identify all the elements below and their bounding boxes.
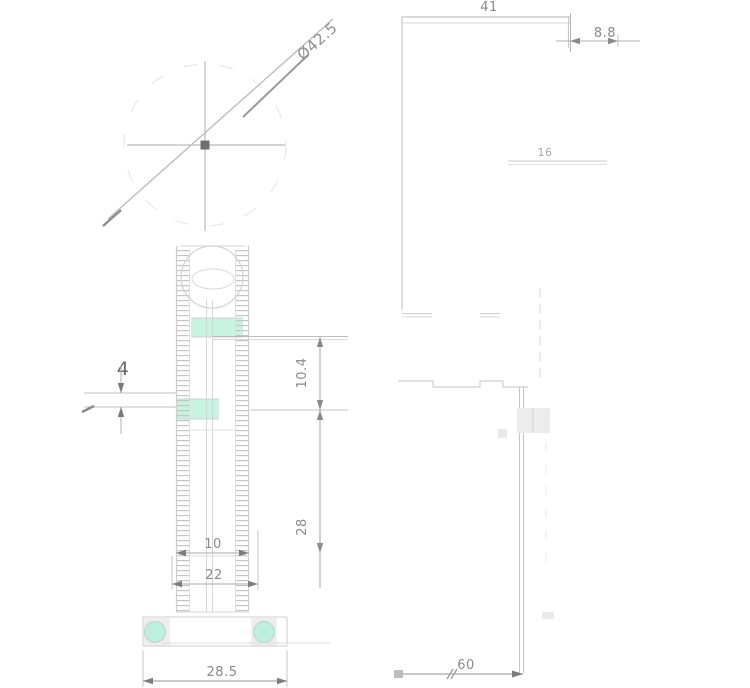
dim-side-hole: 16 — [538, 146, 553, 159]
arrow-v-bottom — [317, 543, 323, 553]
dim-body-height: 28 — [295, 518, 310, 536]
ribs-right — [235, 246, 249, 612]
arrow-base-right — [277, 678, 287, 684]
arrow-v-top — [317, 337, 323, 347]
roller-inner-ellipse — [192, 269, 234, 289]
side-view — [398, 13, 607, 673]
side-detail-patch — [498, 429, 507, 438]
mounting-hole-right — [254, 622, 275, 643]
drawing-canvas: Ø42.5 4 10.4 28 10 22 — [0, 0, 750, 688]
ribs-left — [176, 246, 190, 612]
arrow-22-right — [248, 581, 258, 587]
tick-60-left — [394, 670, 403, 678]
dim-base-width: 28.5 — [207, 665, 238, 680]
dim-plunger-travel: 4 — [117, 358, 130, 380]
center-mark — [201, 141, 210, 150]
front-view-dimensions: Ø42.5 4 10.4 28 10 22 — [82, 19, 348, 687]
dim-lower-width: 22 — [205, 568, 223, 583]
arrow-60-right — [512, 671, 523, 678]
arrow-v-mid-up — [317, 400, 323, 410]
arrow-travel-bottom — [118, 407, 124, 417]
dim-upper-height: 10.4 — [295, 358, 310, 389]
diameter-leader-dark — [243, 55, 308, 117]
arrow-v-mid-down — [317, 410, 323, 420]
mounting-hole-left — [145, 622, 166, 643]
side-view-dimensions: 41 8.8 16 60 — [394, 0, 640, 679]
arrow-base-left — [143, 678, 153, 684]
dim-lower-width-inner: 10 — [204, 537, 222, 552]
diameter-leader-end — [103, 210, 121, 226]
dim-top-width: 41 — [480, 0, 498, 15]
side-bottom-patch — [542, 612, 554, 619]
dim-top-offset: 8.8 — [594, 26, 616, 41]
dim-side-width: 60 — [457, 658, 475, 673]
arrow-travel-top — [118, 383, 124, 393]
side-step-profile — [398, 381, 528, 387]
drawing-svg: Ø42.5 4 10.4 28 10 22 — [0, 0, 750, 688]
arrow-88-left — [570, 38, 580, 44]
dim-roller-diameter: Ø42.5 — [294, 19, 342, 64]
